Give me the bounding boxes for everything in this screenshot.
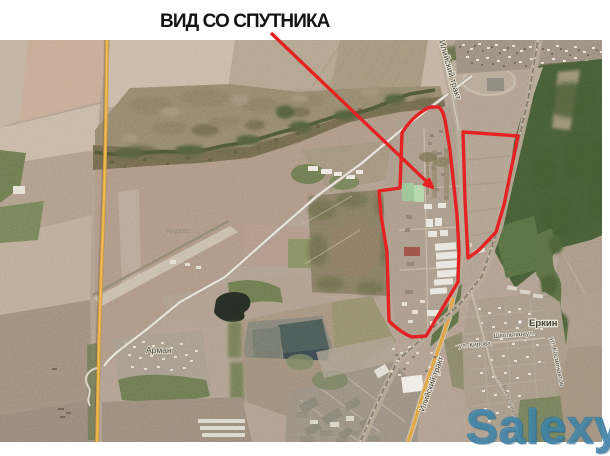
svg-text:Еркин: Еркин <box>529 318 558 329</box>
svg-text:Арман: Арман <box>146 345 172 355</box>
svg-text:Яндекс: Яндекс <box>166 228 190 235</box>
svg-text:Salexy: Salexy <box>466 401 610 454</box>
